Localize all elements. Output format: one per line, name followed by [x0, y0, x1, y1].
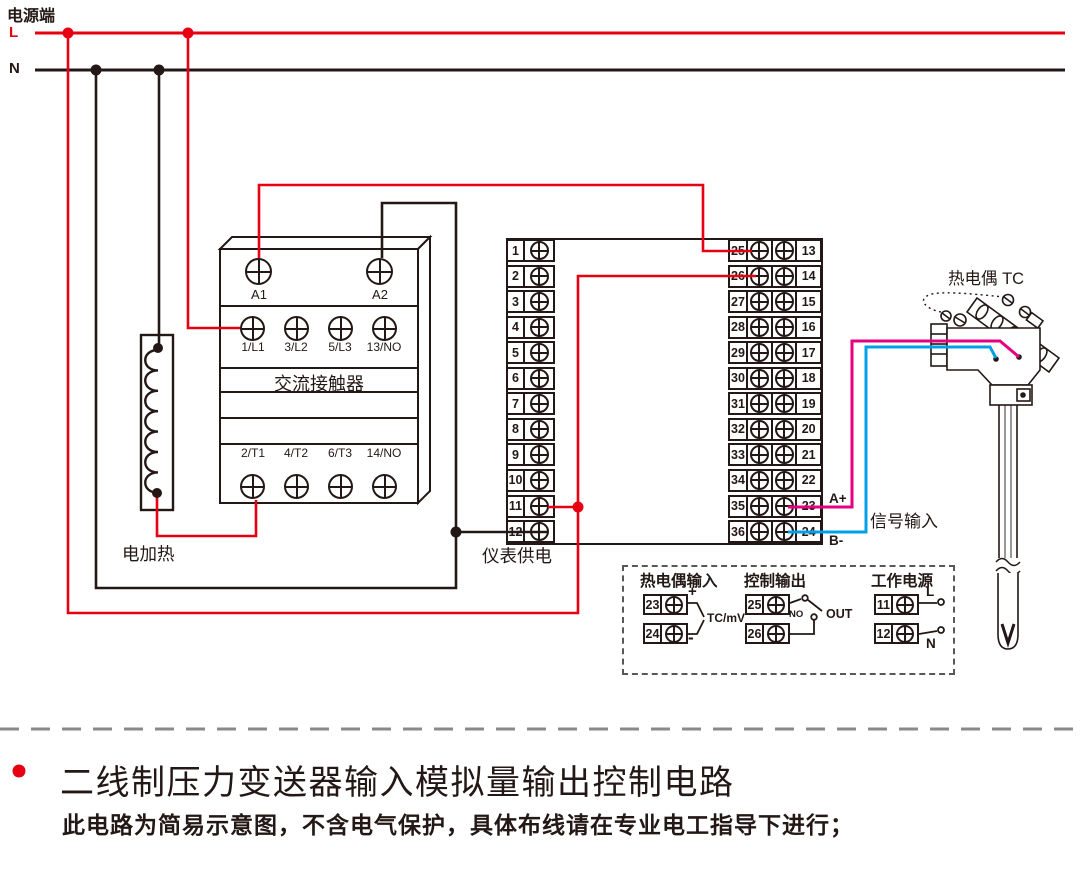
screw-terminal-icon [284, 316, 309, 341]
live-rail-label: L [9, 24, 18, 41]
screw-terminal-icon [240, 316, 265, 341]
footer-bullet [13, 765, 26, 778]
legend-neutral-label: N [926, 636, 936, 651]
signal-a-label: A+ [829, 491, 847, 506]
bushing [931, 324, 947, 366]
terminal-number: 11 [876, 596, 893, 613]
footer-note: 此电路为简易示意图，不含电气保护，具体布线请在专业电工指导下进行； [62, 806, 854, 840]
legend-terminal: 23 [643, 594, 688, 615]
contactor-terminal-label: 5/L3 [317, 340, 363, 354]
terminal-number: 24 [645, 625, 662, 642]
contactor-terminal-label: 3/L2 [273, 340, 319, 354]
screw-terminal-icon [767, 625, 785, 643]
legend-terminal: 25 [745, 594, 790, 615]
legend-terminal: 26 [745, 623, 790, 644]
signal-input-label: 信号输入 [870, 507, 938, 532]
screw-terminal-icon [328, 316, 353, 341]
heater-label: 电加热 [122, 541, 175, 566]
screw-terminal-icon [896, 596, 914, 614]
legend-range-label: TC/mV [707, 611, 745, 625]
meter-power-label: 仪表供电 [482, 543, 552, 568]
screw-terminal-icon [284, 474, 309, 499]
legend-live-label: L [926, 584, 934, 599]
legend-working-power-title: 工作电源 [871, 569, 933, 591]
legend-plus-sign: + [688, 583, 697, 600]
contactor-terminal-label: 1/L1 [230, 340, 276, 354]
screw-terminal-icon [767, 596, 785, 614]
wiring-diagram-page: 123456789101112 251326142715281629173018… [0, 0, 1080, 869]
legend-terminal: 12 [874, 623, 919, 644]
screw-terminal-icon [372, 316, 397, 341]
diagram-linework [0, 0, 1080, 869]
legend-control-output-title: 控制输出 [744, 569, 806, 591]
contactor-terminal-label: 13/NO [361, 340, 407, 354]
screw-terminal-icon [366, 258, 393, 285]
contactor-terminal-label: 4/T2 [273, 446, 319, 460]
screw-terminal-icon [372, 474, 397, 499]
contactor-terminal-label-A2: A2 [365, 287, 395, 302]
terminal-number: 25 [747, 596, 764, 613]
screw-terminal-icon [665, 625, 683, 643]
probe-tube [998, 573, 1018, 649]
signal-b-wire [788, 347, 996, 532]
contactor-terminal-label: 6/T3 [317, 446, 363, 460]
contactor-terminal-label-A1: A1 [244, 287, 274, 302]
footer-title: 二线制压力变送器输入模拟量输出控制电路 [60, 755, 735, 804]
legend-tc-input-title: 热电偶输入 [640, 569, 718, 591]
terminal-number: 23 [645, 596, 662, 613]
contactor-terminal-label: 14/NO [361, 446, 407, 460]
legend-terminal: 11 [874, 594, 919, 615]
neutral-rail-label: N [9, 60, 20, 77]
screw-terminal-icon [896, 625, 914, 643]
thermocouple-label: 热电偶 TC [948, 265, 1024, 289]
contactor-terminal-label: 2/T1 [230, 446, 276, 460]
legend-no-label: NO [789, 609, 803, 620]
contactor-title: 交流接触器 [220, 370, 418, 396]
screw-terminal-icon [665, 596, 683, 614]
legend-minus-sign: - [688, 628, 694, 648]
terminal-number: 12 [876, 625, 893, 642]
heater-element [141, 335, 173, 510]
terminal-number: 26 [747, 625, 764, 642]
screw-terminal-icon [240, 474, 265, 499]
power-terminal-title: 电源端 [7, 2, 55, 26]
screw-terminal-icon [245, 258, 272, 285]
legend-out-label: OUT [826, 607, 852, 621]
signal-b-label: B- [829, 533, 843, 548]
screw-terminal-icon [328, 474, 353, 499]
legend-terminal: 24 [643, 623, 688, 644]
